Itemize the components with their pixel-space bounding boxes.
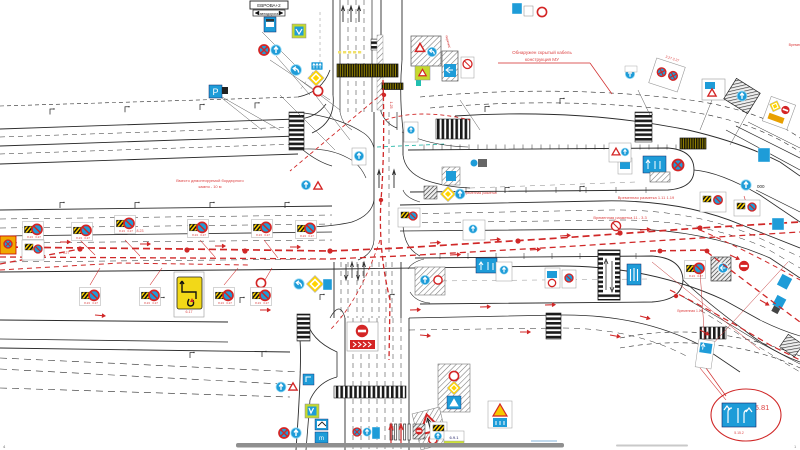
svg-text:автодорога: автодорога — [260, 12, 279, 16]
svg-text:Обнаружен скрытый кабель: Обнаружен скрытый кабель — [512, 49, 572, 55]
svg-text:3.27: 3.27 — [63, 251, 70, 255]
svg-text:000: 000 — [757, 184, 765, 189]
svg-text:6.17: 6.17 — [186, 310, 193, 314]
svg-text:Вместо демонтируемой бордюрног: Вместо демонтируемой бордюрного — [176, 178, 244, 183]
svg-text:Времен: Времен — [789, 43, 800, 47]
svg-text:Временная разметка 1.11 1.19: Временная разметка 1.11 1.19 — [618, 195, 675, 200]
svg-text:перенос: перенос — [444, 35, 451, 49]
svg-text:1.25: 1.25 — [389, 102, 393, 109]
svg-text:Временная 1.19: Временная 1.19 — [677, 309, 702, 313]
svg-text:5.81: 5.81 — [755, 403, 770, 412]
svg-text:1: 1 — [794, 444, 797, 449]
svg-text:m: m — [319, 436, 324, 442]
svg-text:8.23: 8.23 — [137, 229, 144, 233]
svg-text:Временная разметка 11 - 3.3: Временная разметка 11 - 3.3 — [593, 215, 647, 220]
svg-text:5.15.2: 5.15.2 — [734, 431, 744, 435]
svg-text:Временная разметка: Временная разметка — [463, 191, 496, 195]
svg-text:конструкция МУ: конструкция МУ — [525, 57, 559, 62]
svg-text:6.9.1: 6.9.1 — [450, 435, 460, 440]
svg-text:P: P — [212, 87, 218, 97]
svg-text:4: 4 — [3, 444, 6, 449]
svg-text:ЕВРОВА+2: ЕВРОВА+2 — [257, 3, 281, 8]
svg-text:камня - 10 м: камня - 10 м — [198, 184, 221, 189]
